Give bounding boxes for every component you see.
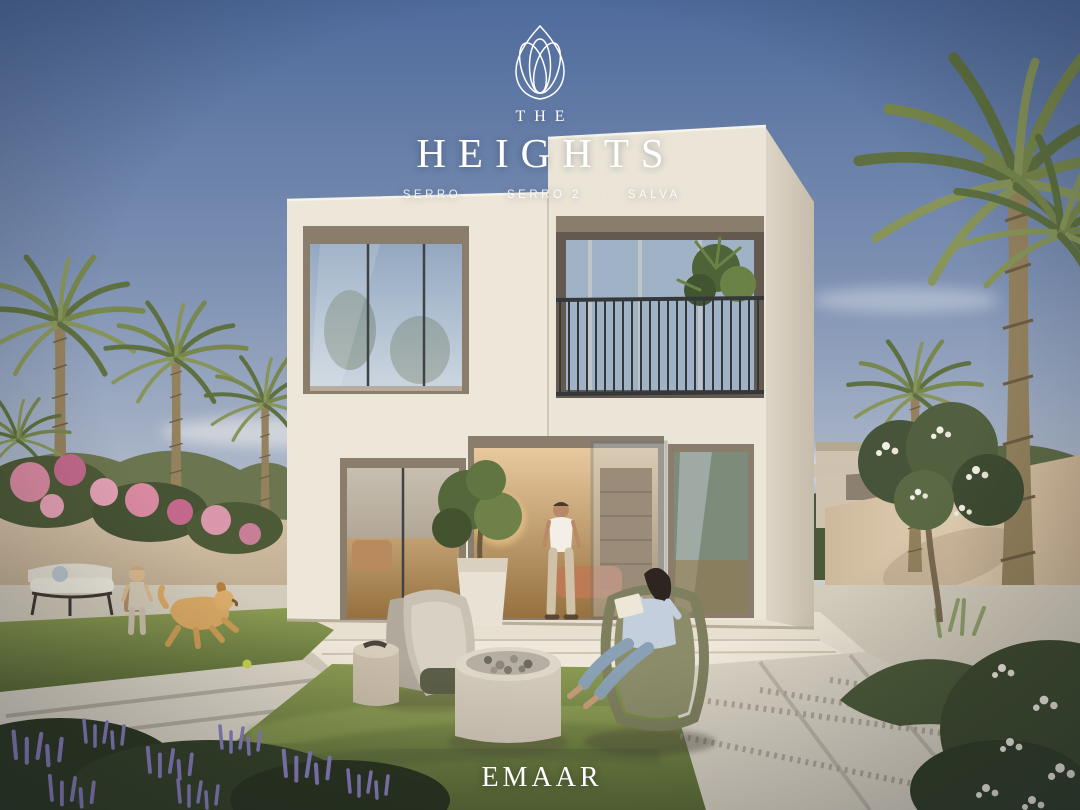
poster-canvas: THE HEIGHTS SERRO · SERRO 2 · SALVA EMAA… (0, 0, 1080, 810)
vignette (0, 0, 1080, 810)
scene-render (0, 0, 1080, 810)
